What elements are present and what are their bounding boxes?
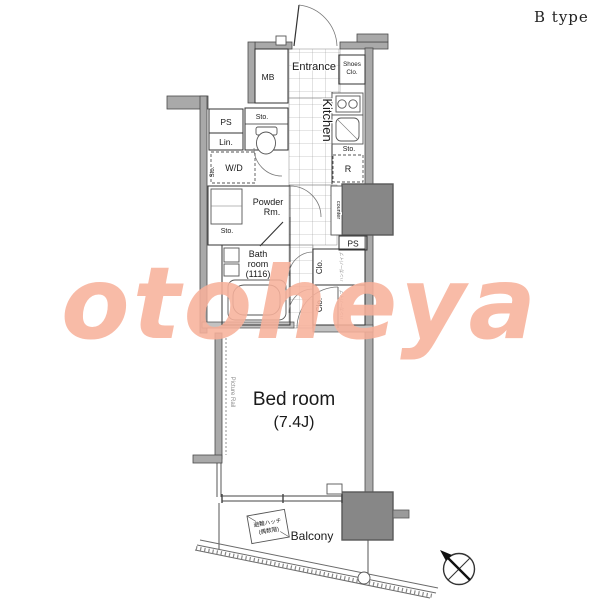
bath-door: [260, 222, 283, 246]
pillars: [342, 184, 409, 540]
window-step: [327, 484, 342, 494]
entrance-label: Entrance: [292, 61, 336, 73]
wd-storage-label: Sto.: [210, 166, 216, 177]
floorplan-drawing: MB Shoes Clo. Entrance Sto. R Kitchen co…: [0, 0, 600, 600]
picture-rail-label: Picture Rail: [229, 377, 235, 408]
drain-pipe: [358, 572, 370, 584]
evacuation-hatch: 避難ハッチ (偶数階): [247, 509, 289, 543]
meter-box-label: MB: [262, 72, 275, 82]
powder-room-label-2: Rm.: [264, 207, 281, 217]
powder-room-label-1: Powder: [253, 197, 284, 207]
shoes-closet-label-1: Shoes: [343, 61, 361, 68]
balcony-railing: [195, 540, 438, 598]
shoes-closet: Shoes Clo.: [339, 55, 365, 84]
compass-north-icon: [440, 550, 475, 585]
powder-cabinet: [211, 189, 242, 224]
burner-icon: [349, 100, 357, 108]
pillar-kitchen: [342, 184, 393, 235]
floorplan-page: MB Shoes Clo. Entrance Sto. R Kitchen co…: [0, 0, 600, 600]
linen-label: Lin.: [219, 137, 233, 147]
pillar-balcony: [342, 492, 393, 540]
entrance-door: [294, 5, 337, 46]
watermark-text: otoheya: [61, 245, 539, 362]
toilet: [257, 132, 276, 154]
wc-storage-label: Sto.: [256, 114, 269, 121]
kitchen-storage-label: Sto.: [343, 146, 356, 153]
pipe-space-label: PS: [220, 117, 232, 127]
powder-storage-label: Sto.: [221, 228, 234, 235]
balcony-label: Balcony: [291, 529, 334, 543]
shoes-closet-label-2: Clo.: [346, 69, 357, 76]
pillar-pipe: [393, 510, 409, 518]
plan-type-label: B type: [534, 8, 589, 26]
bedroom-size-label: (7.4J): [274, 414, 315, 431]
bedroom-window: [217, 463, 342, 503]
kitchen-label: Kitchen: [320, 98, 335, 141]
washer-dryer-label: W/D: [225, 163, 243, 173]
counter-label: counter: [335, 201, 341, 220]
bedroom-label: Bed room: [253, 389, 335, 410]
burner-icon: [338, 100, 346, 108]
refrigerator-label: R: [345, 164, 352, 174]
